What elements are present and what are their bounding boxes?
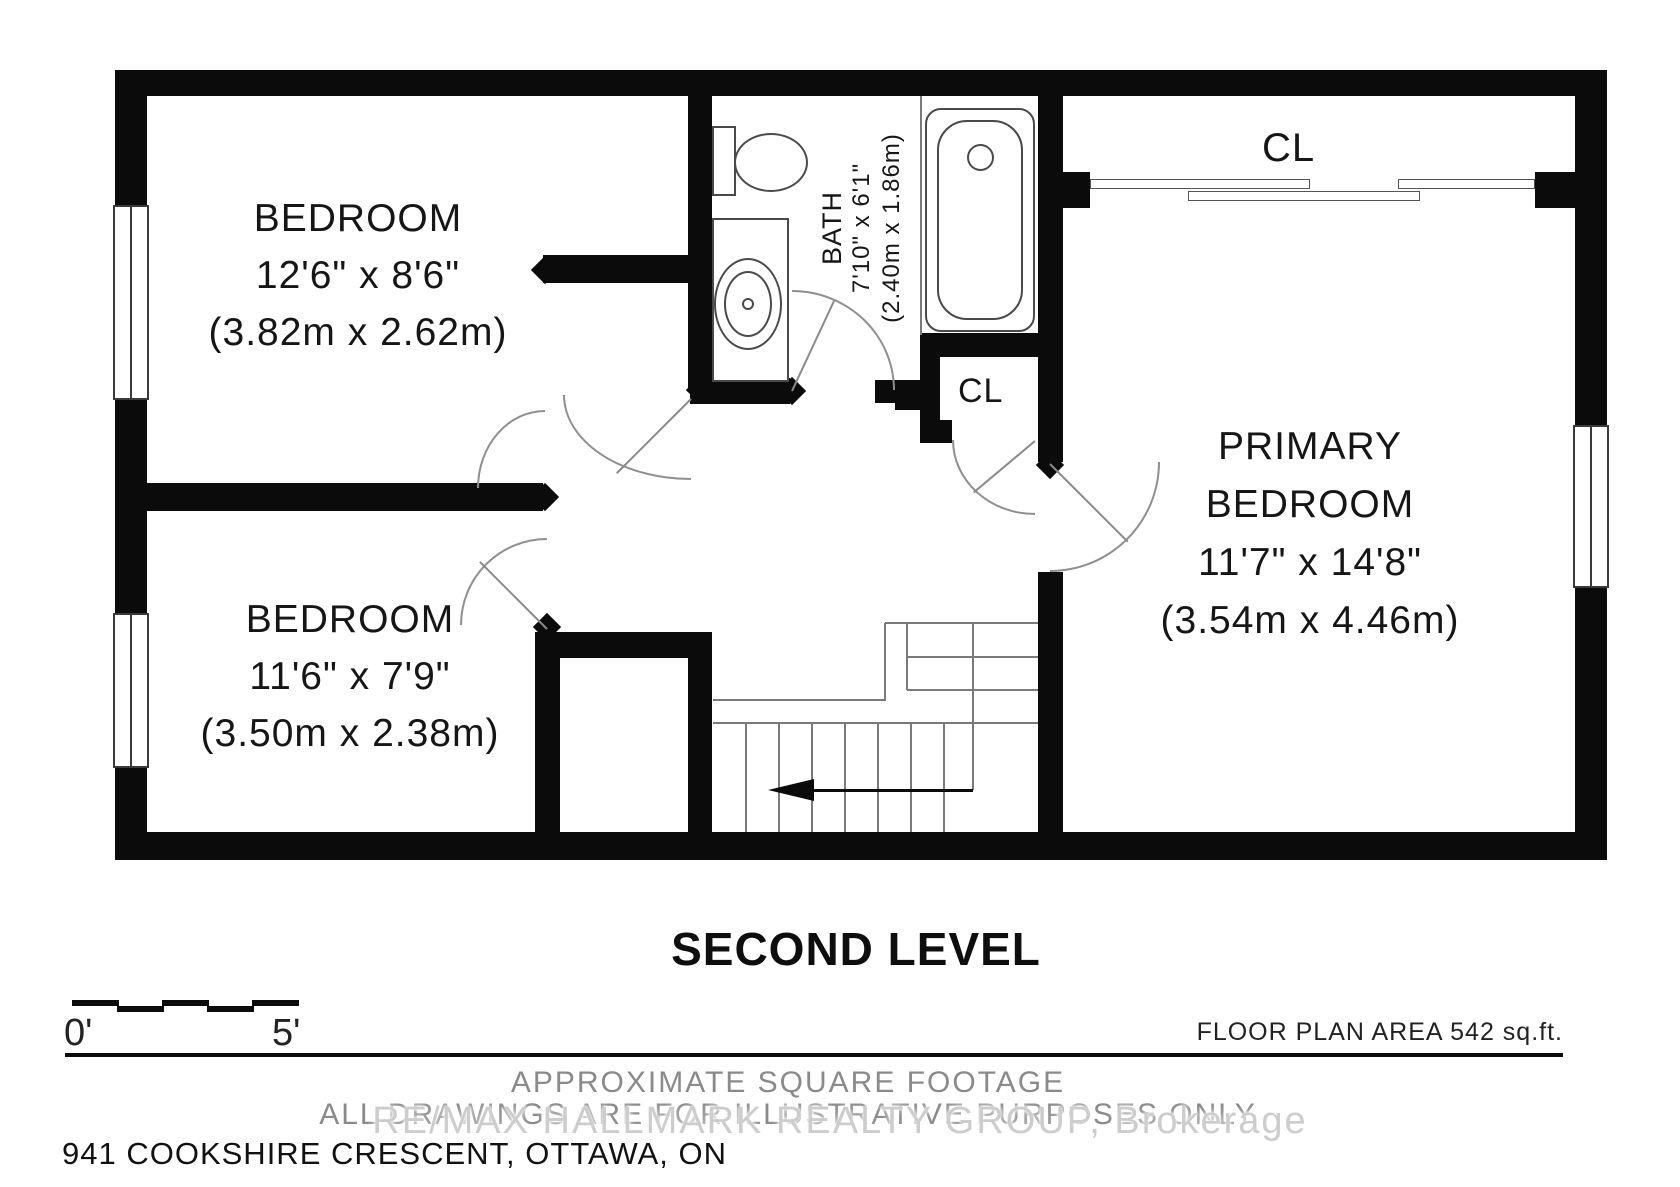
room-name: BEDROOM — [150, 591, 550, 648]
disclaimer-line-1: APPROXIMATE SQUARE FOOTAGE — [288, 1066, 1288, 1100]
floor-plan-area-note: FLOOR PLAN AREA 542 sq.ft. — [1100, 1018, 1563, 1047]
stair-tread — [778, 723, 780, 832]
stair-run-top — [713, 722, 1038, 724]
room-dim-imperial: 11'7" x 14'8" — [1090, 534, 1530, 592]
stair-tread — [844, 723, 846, 832]
room-dim-imperial: 12'6" x 8'6" — [158, 247, 558, 304]
closet-hall-label: CL — [958, 372, 1003, 411]
wall-closet-hall-left — [920, 333, 940, 443]
scale-bar-segment — [72, 1000, 119, 1006]
stair-tread — [943, 723, 945, 832]
room-name: BEDROOM — [1090, 476, 1530, 534]
wall-left-mid — [115, 400, 147, 613]
wall-closet-top-stub-right — [1535, 172, 1575, 208]
bath-label: BATH 7'10" x 6'1" (2.40m x 1.86m) — [817, 133, 907, 323]
wall-hall-stub — [557, 632, 712, 658]
window-primary — [1573, 425, 1609, 588]
wall-left-lower — [115, 768, 147, 860]
room-dim-metric: (3.82m x 2.62m) — [158, 304, 558, 361]
stair-hall-line — [713, 699, 885, 701]
scale-bar-segment — [162, 1000, 209, 1006]
stair-down-arrow — [768, 779, 814, 801]
room-dim-metric: (3.54m x 4.46m) — [1090, 592, 1530, 650]
floor-plan-page: BEDROOM 12'6" x 8'6" (3.82m x 2.62m) BED… — [0, 0, 1680, 1187]
room-name: BEDROOM — [158, 190, 558, 247]
wall-bedroom-top-right-stub — [543, 255, 712, 283]
wall-bottom — [115, 832, 1607, 860]
room-dim-imperial: 11'6" x 7'9" — [150, 648, 550, 705]
room-name: PRIMARY — [1090, 418, 1530, 476]
door-arc-bedroom-top-2 — [477, 410, 545, 488]
scale-start-label: 0' — [64, 1012, 92, 1055]
wall-right-upper — [1575, 70, 1607, 425]
toilet-bowl — [734, 133, 808, 192]
stair-landing-divider — [906, 623, 908, 690]
stair-landing-left — [884, 623, 886, 701]
footer-divider — [65, 1053, 1563, 1057]
scale-bar-segment — [207, 1006, 254, 1012]
wall-closet-hall-corner — [940, 420, 952, 443]
stair-tread — [811, 723, 813, 832]
stair-tread — [910, 723, 912, 832]
sink-drain — [742, 298, 754, 310]
closet-slider-panel — [1398, 179, 1535, 189]
property-address: 941 COOKSHIRE CRESCENT, OTTAWA, ON — [62, 1136, 727, 1172]
room-dim-metric: (2.40m x 1.86m) — [877, 133, 907, 323]
wall-stair-left — [688, 658, 712, 832]
wall-left-upper — [115, 70, 147, 205]
bedroom-top-label: BEDROOM 12'6" x 8'6" (3.82m x 2.62m) — [158, 190, 558, 361]
tub-faucet — [967, 144, 994, 171]
plan-title: SECOND LEVEL — [600, 922, 1112, 976]
wall-right-lower — [1575, 588, 1607, 860]
window-bedroom-top — [113, 205, 149, 400]
window-bedroom-bottom — [113, 613, 149, 768]
scale-bar-segment — [252, 1000, 299, 1006]
window-mullion — [1590, 427, 1592, 586]
wall-bath-right — [1038, 96, 1063, 462]
wall-hall-right — [1038, 572, 1063, 832]
wall-bath-left — [688, 96, 712, 388]
room-dim-imperial: 7'10" x 6'1" — [847, 133, 877, 323]
door-arc-bedroom-top — [563, 395, 691, 480]
wall-top — [115, 70, 1607, 96]
closet-slider-panel — [1090, 179, 1310, 189]
scale-bar-segment — [117, 1006, 164, 1012]
stair-winder-divider — [972, 623, 974, 790]
closet-top-label: CL — [1262, 126, 1315, 171]
toilet-tank — [712, 126, 736, 196]
tub-alcove-line — [920, 96, 922, 335]
primary-bedroom-label: PRIMARY BEDROOM 11'7" x 14'8" (3.54m x 4… — [1090, 418, 1530, 650]
wall-closet-top-stub-left — [1063, 172, 1090, 208]
stair-tread — [877, 723, 879, 832]
room-dim-metric: (3.50m x 2.38m) — [150, 705, 550, 762]
scale-end-label: 5' — [272, 1012, 300, 1055]
stair-arrow-shaft — [814, 789, 973, 792]
room-name: BATH — [817, 133, 847, 323]
window-mullion — [130, 615, 132, 766]
bedroom-bottom-label: BEDROOM 11'6" x 7'9" (3.50m x 2.38m) — [150, 591, 550, 762]
closet-slider-panel — [1188, 191, 1420, 201]
window-mullion — [130, 207, 132, 398]
stair-tread — [745, 723, 747, 832]
